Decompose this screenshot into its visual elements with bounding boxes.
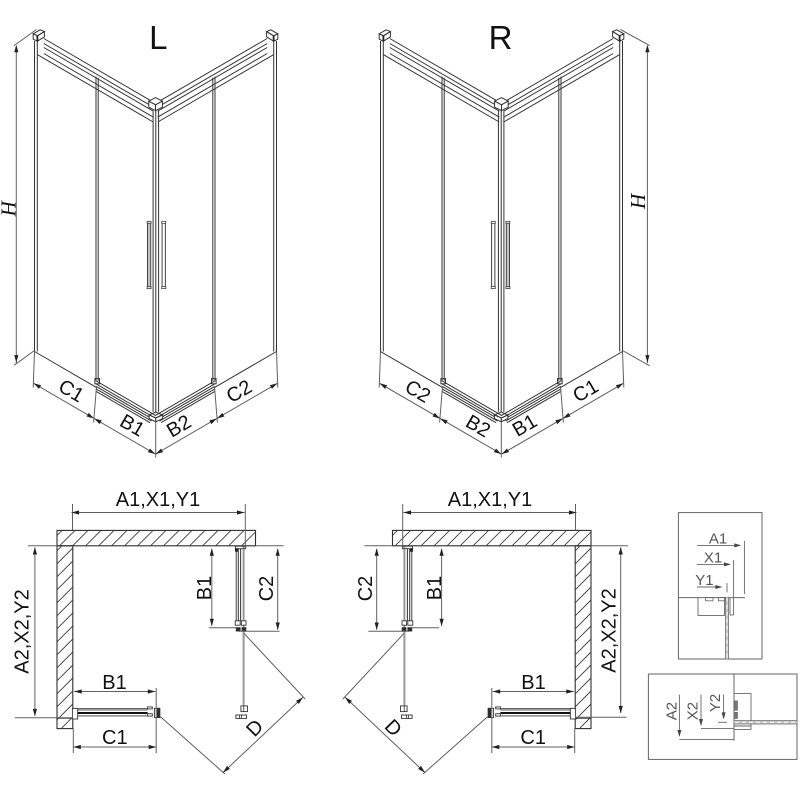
svg-text:A2,X2,Y2: A2,X2,Y2 xyxy=(599,588,621,673)
svg-text:A2: A2 xyxy=(664,702,681,720)
svg-text:Y1: Y1 xyxy=(695,572,713,589)
svg-text:B1: B1 xyxy=(521,672,545,694)
svg-text:C1: C1 xyxy=(520,727,546,749)
svg-text:X2: X2 xyxy=(685,702,702,720)
svg-text:A1,X1,Y1: A1,X1,Y1 xyxy=(448,489,533,511)
svg-text:B1: B1 xyxy=(102,672,126,694)
svg-text:C2: C2 xyxy=(355,576,377,602)
svg-text:R: R xyxy=(489,19,513,56)
svg-text:C1: C1 xyxy=(102,727,128,749)
svg-text:H: H xyxy=(626,192,650,210)
svg-text:A2,X2,Y2: A2,X2,Y2 xyxy=(12,589,34,674)
svg-text:H: H xyxy=(0,199,20,217)
svg-text:C2: C2 xyxy=(256,576,278,602)
svg-text:B1: B1 xyxy=(194,576,216,600)
svg-text:B1: B1 xyxy=(424,576,446,600)
svg-text:L: L xyxy=(149,19,167,56)
svg-text:Y2: Y2 xyxy=(707,694,724,712)
svg-text:X1: X1 xyxy=(704,549,722,566)
svg-text:A1,X1,Y1: A1,X1,Y1 xyxy=(116,489,201,511)
svg-text:A1: A1 xyxy=(709,530,727,547)
